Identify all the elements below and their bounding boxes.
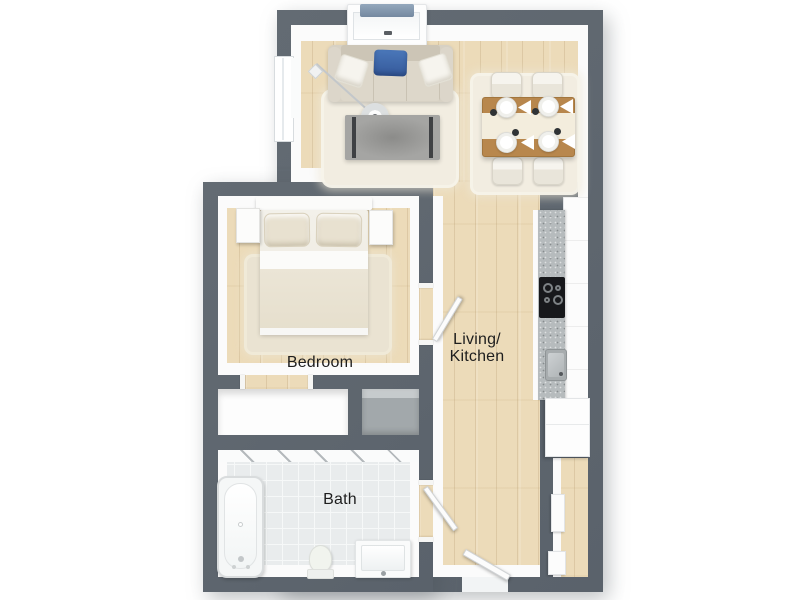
bathroom-sink-tap: [381, 571, 386, 576]
coffee-table-leg: [352, 117, 356, 158]
bathroom-right-wall-trim: [410, 462, 419, 565]
floorplan-canvas: Bedroom Bath Living/ Kitchen: [0, 0, 800, 600]
bedroom-door-jamb: [419, 283, 433, 288]
place-setting-plate: [538, 96, 559, 117]
closet-door-jamb: [240, 375, 245, 389]
bathroom-sink-basin: [361, 545, 405, 571]
window-sill: [291, 58, 300, 118]
sofa-pillow-blue: [374, 49, 408, 76]
bedroom-left-wall-trim: [218, 208, 227, 363]
living-top-wall-trim: [291, 25, 588, 41]
wardrobe-closet: [218, 389, 348, 435]
nightstand-left: [236, 208, 260, 243]
bedroom-right-wall-trim: [410, 208, 419, 363]
bed-pillow: [264, 213, 311, 248]
kitchen-faucet: [559, 372, 563, 376]
closet-door-jamb: [308, 375, 313, 389]
toilet-tank: [307, 569, 334, 579]
cooktop-burner: [544, 297, 550, 303]
dining-table-runner: [482, 113, 575, 139]
living-kitchen-label-line2: Kitchen: [427, 348, 527, 365]
bed-duvet: [260, 269, 368, 330]
bathtub-faucet: [238, 556, 244, 562]
coffee-table: [345, 115, 440, 160]
living-kitchen-label-line1: Living/: [427, 331, 527, 348]
place-setting-cup: [490, 109, 497, 116]
living-kitchen-label: Living/ Kitchen: [427, 331, 527, 365]
hall-cabinet: [548, 551, 566, 575]
corridor-left-wall-trim: [433, 196, 443, 577]
coffee-table-leg: [429, 117, 433, 158]
place-setting-plate: [496, 97, 517, 118]
living-right-wall-trim: [578, 25, 588, 197]
bed-footboard: [260, 328, 368, 335]
cooktop-burner: [553, 295, 563, 305]
bathtub-tap: [246, 565, 250, 569]
utility-closet: [362, 389, 419, 435]
dining-chair: [533, 157, 564, 185]
bed-sheet-fold: [260, 251, 368, 271]
dining-chair: [492, 157, 523, 185]
fridge: [545, 398, 590, 457]
bathtub-drain: [238, 522, 243, 527]
cooktop-burner: [543, 283, 553, 293]
nightstand-right: [369, 210, 393, 245]
bathroom-door-jamb: [419, 537, 433, 542]
bed-headboard: [256, 197, 372, 210]
hall-cabinet: [551, 494, 565, 532]
bed-pillow: [316, 213, 363, 248]
bathtub-tap: [232, 565, 236, 569]
dining-chair: [532, 72, 563, 99]
dining-chair: [491, 72, 522, 99]
bath-label: Bath: [302, 491, 378, 508]
fridge-door-seam: [546, 424, 589, 425]
cooktop-burner: [555, 285, 561, 291]
entry-door-threshold: [462, 577, 508, 592]
place-setting-cup: [532, 108, 539, 115]
tv-screen: [360, 4, 414, 17]
place-setting-cup: [554, 128, 561, 135]
bedroom-label: Bedroom: [250, 354, 390, 371]
bathroom-top-wall-trim: [218, 450, 419, 462]
closet-door-opening: [245, 375, 308, 389]
window-pane-line: [282, 58, 284, 140]
bathroom-door-jamb: [419, 480, 433, 485]
place-setting-cup: [512, 129, 519, 136]
toilet: [309, 545, 332, 572]
tv-console-handle: [384, 31, 392, 35]
